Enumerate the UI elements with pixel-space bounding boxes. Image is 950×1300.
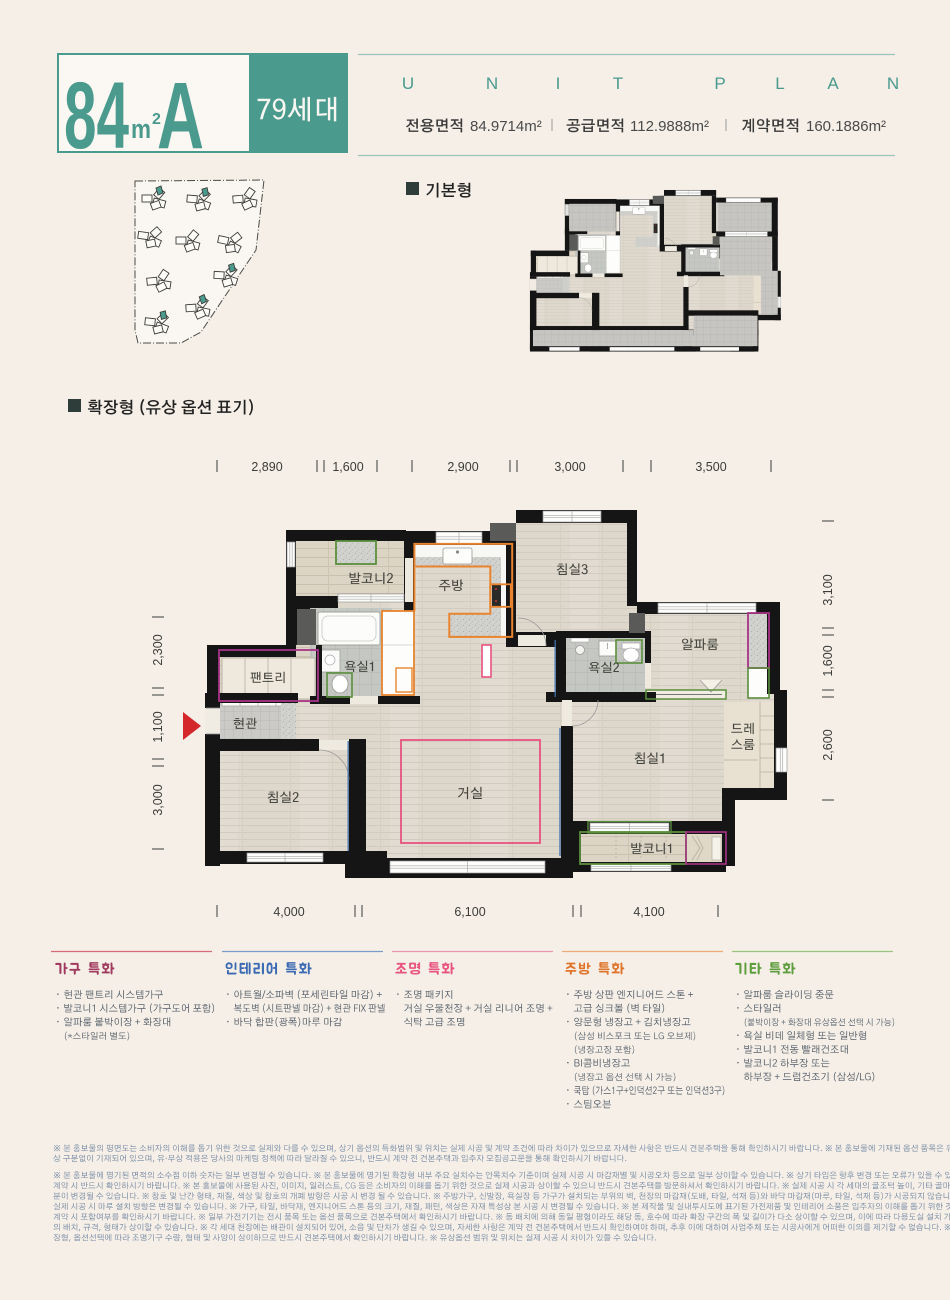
svg-text:84: 84 <box>64 63 129 169</box>
svg-text:A: A <box>157 63 204 169</box>
svg-text:L: L <box>775 74 784 93</box>
svg-text:6,100: 6,100 <box>454 905 485 919</box>
svg-text:N: N <box>887 74 899 93</box>
svg-text:A: A <box>827 74 839 93</box>
svg-text:1,600: 1,600 <box>332 460 363 474</box>
svg-text:3,500: 3,500 <box>695 460 726 474</box>
svg-text:4,100: 4,100 <box>633 905 664 919</box>
svg-text:3,100: 3,100 <box>821 574 835 605</box>
svg-text:2,900: 2,900 <box>447 460 478 474</box>
svg-text:P: P <box>714 74 725 93</box>
svg-text:112.9888m²: 112.9888m² <box>630 118 709 135</box>
svg-text:m: m <box>131 114 151 144</box>
svg-text:N: N <box>486 74 498 93</box>
svg-text:2,600: 2,600 <box>821 729 835 760</box>
svg-text:3,000: 3,000 <box>151 784 165 815</box>
svg-text:3,000: 3,000 <box>554 460 585 474</box>
svg-text:160.1886m²: 160.1886m² <box>806 118 886 135</box>
svg-text:4,000: 4,000 <box>273 905 304 919</box>
svg-text:84.9714m²: 84.9714m² <box>470 118 542 135</box>
svg-text:2,890: 2,890 <box>251 460 282 474</box>
svg-text:2,300: 2,300 <box>151 634 165 665</box>
svg-text:T: T <box>613 74 623 93</box>
svg-text:U: U <box>402 74 414 93</box>
svg-text:1,600: 1,600 <box>821 645 835 676</box>
svg-text:1,100: 1,100 <box>151 711 165 742</box>
svg-text:I: I <box>556 74 561 93</box>
